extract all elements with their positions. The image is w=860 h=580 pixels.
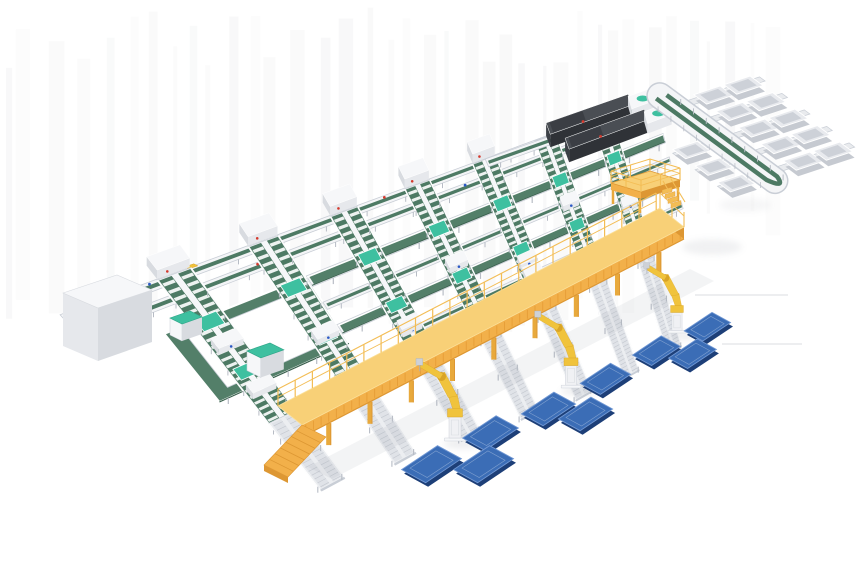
render-stage <box>0 0 860 580</box>
pallet-panel-1 <box>684 312 733 345</box>
factory-render-canvas <box>0 0 860 580</box>
sorter-line-with-chutes <box>656 76 855 198</box>
control-cabinet <box>63 275 152 361</box>
pallet-panel-9 <box>454 446 516 487</box>
